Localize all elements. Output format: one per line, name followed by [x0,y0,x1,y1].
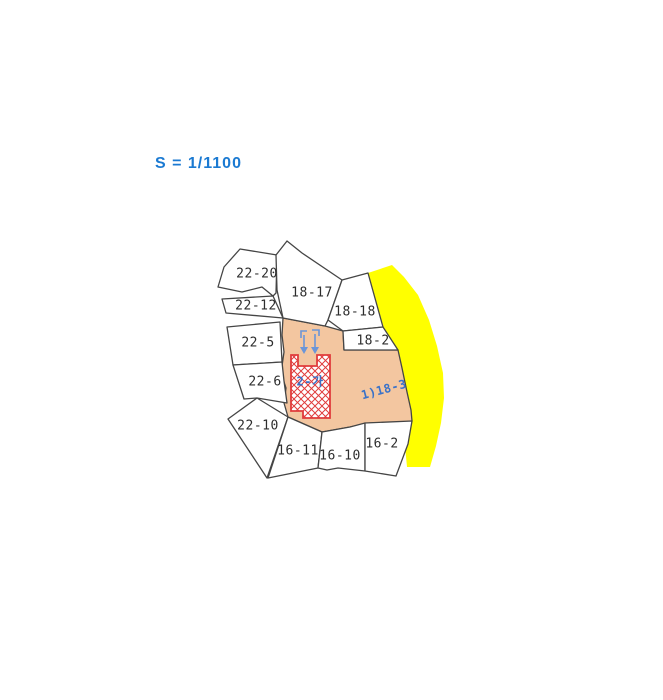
parcel-label-22-12: 22-12 [235,299,277,314]
building-label: 2-가 [297,374,324,389]
parcel-label-22-5: 22-5 [241,336,274,351]
parcel-label-22-20: 22-20 [236,267,278,282]
parcel-label-16-2: 16-2 [365,437,398,452]
cadastral-map: 22-2018-1722-1218-1822-518-222-622-1016-… [0,0,663,700]
parcel-label-22-10: 22-10 [237,419,279,434]
parcel-label-16-11: 16-11 [277,444,319,459]
parcel-label-22-6: 22-6 [248,375,281,390]
map-viewport: S = 1/1100 22-2018-1722-1218-1822-518-22… [0,0,663,700]
parcel-label-18-17: 18-17 [291,286,333,301]
parcel-label-18-18: 18-18 [334,305,376,320]
parcel-label-18-2: 18-2 [356,334,389,349]
parcel-label-16-10: 16-10 [319,449,361,464]
